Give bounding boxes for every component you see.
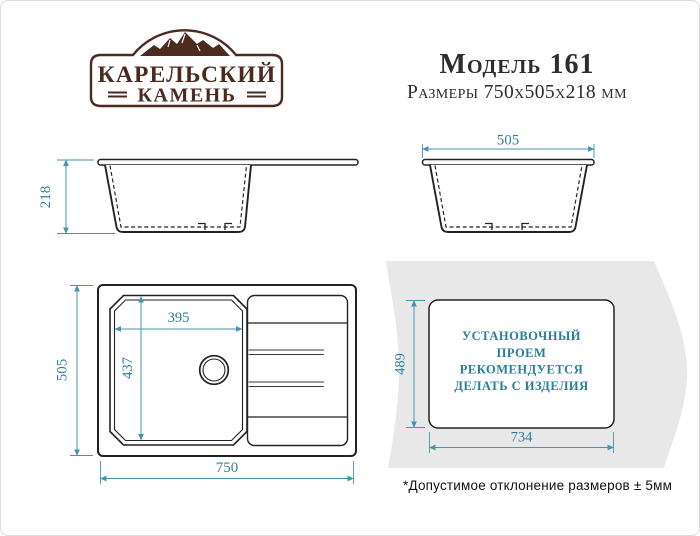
dim-label-depth-505: 505 xyxy=(55,359,71,382)
spec-sheet-page: КАРЕЛЬСКИЙ КАМЕНЬ 218 505 xyxy=(0,0,700,536)
drain-hole-outer xyxy=(200,356,229,385)
brand-logo: КАРЕЛЬСКИЙ КАМЕНЬ xyxy=(91,30,282,106)
sink-rim-front xyxy=(98,160,358,166)
top-plan-view: 505 750 395 437 xyxy=(55,285,357,484)
install-note-line2: ПРОЕМ xyxy=(497,346,547,360)
dim-label-cutout-489: 489 xyxy=(393,353,409,375)
dim-label-width-505: 505 xyxy=(497,133,520,149)
overall-dimensions-line: Размеры 750х505х218 мм xyxy=(386,82,648,104)
dim-label-height-218: 218 xyxy=(38,186,54,209)
dim-label-bowl-395: 395 xyxy=(168,310,190,326)
side-section-view: 505 xyxy=(423,133,595,233)
install-note-line4: ДЕЛАТЬ С ИЗДЕЛИЯ xyxy=(454,379,588,393)
dim-label-width-750: 750 xyxy=(216,460,239,476)
install-cutout-view: УСТАНОВОЧНЫЙ ПРОЕМ РЕКОМЕНДУЕТСЯ ДЕЛАТЬ … xyxy=(386,261,687,468)
model-title: Модель 161 xyxy=(386,50,648,79)
header-block: Модель 161 Размеры 750х505х218 мм xyxy=(386,50,648,104)
brand-name-line2: КАМЕНЬ xyxy=(138,85,237,107)
install-note-line1: УСТАНОВОЧНЫЙ xyxy=(462,329,581,343)
dim-label-bowl-437: 437 xyxy=(120,357,136,379)
tolerance-footnote: *Допустимое отклонение размеров ± 5мм xyxy=(403,478,672,493)
bowl-outline-front xyxy=(105,165,251,232)
dim-label-cutout-734: 734 xyxy=(511,430,534,446)
sink-rim-side xyxy=(423,160,595,166)
install-note-line3: РЕКОМЕНДУЕТСЯ xyxy=(460,363,583,377)
bowl-outline-side xyxy=(430,165,587,232)
front-section-view: 218 xyxy=(38,160,358,234)
